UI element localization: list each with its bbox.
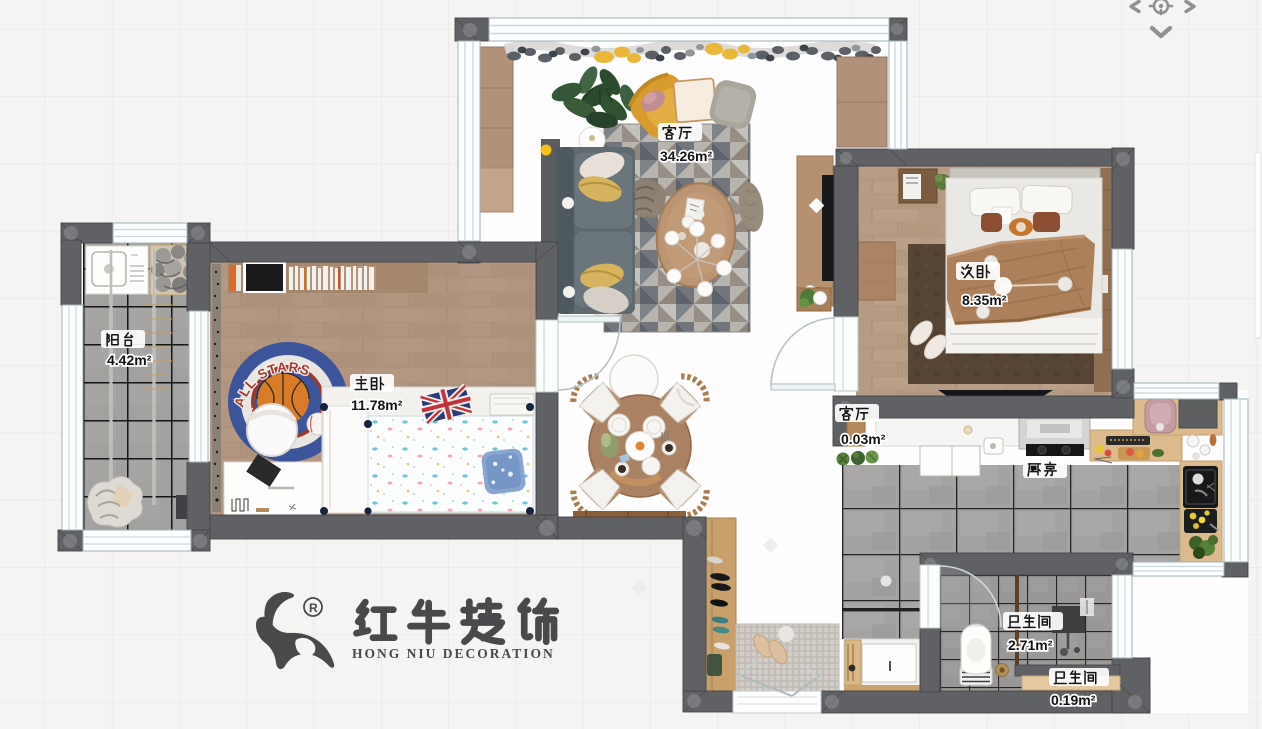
svg-text:R: R [309, 601, 318, 615]
svg-text:0.03m²: 0.03m² [841, 431, 886, 447]
svg-text:8.35m²: 8.35m² [962, 292, 1007, 308]
svg-text:HONG NIU DECORATION: HONG NIU DECORATION [352, 646, 555, 661]
svg-text:4.42m²: 4.42m² [107, 352, 152, 368]
svg-text:2.71m²: 2.71m² [1008, 637, 1053, 653]
svg-text:11.78m²: 11.78m² [351, 397, 403, 413]
svg-text:34.26m²: 34.26m² [660, 148, 712, 164]
svg-text:0.19m²: 0.19m² [1051, 692, 1096, 708]
